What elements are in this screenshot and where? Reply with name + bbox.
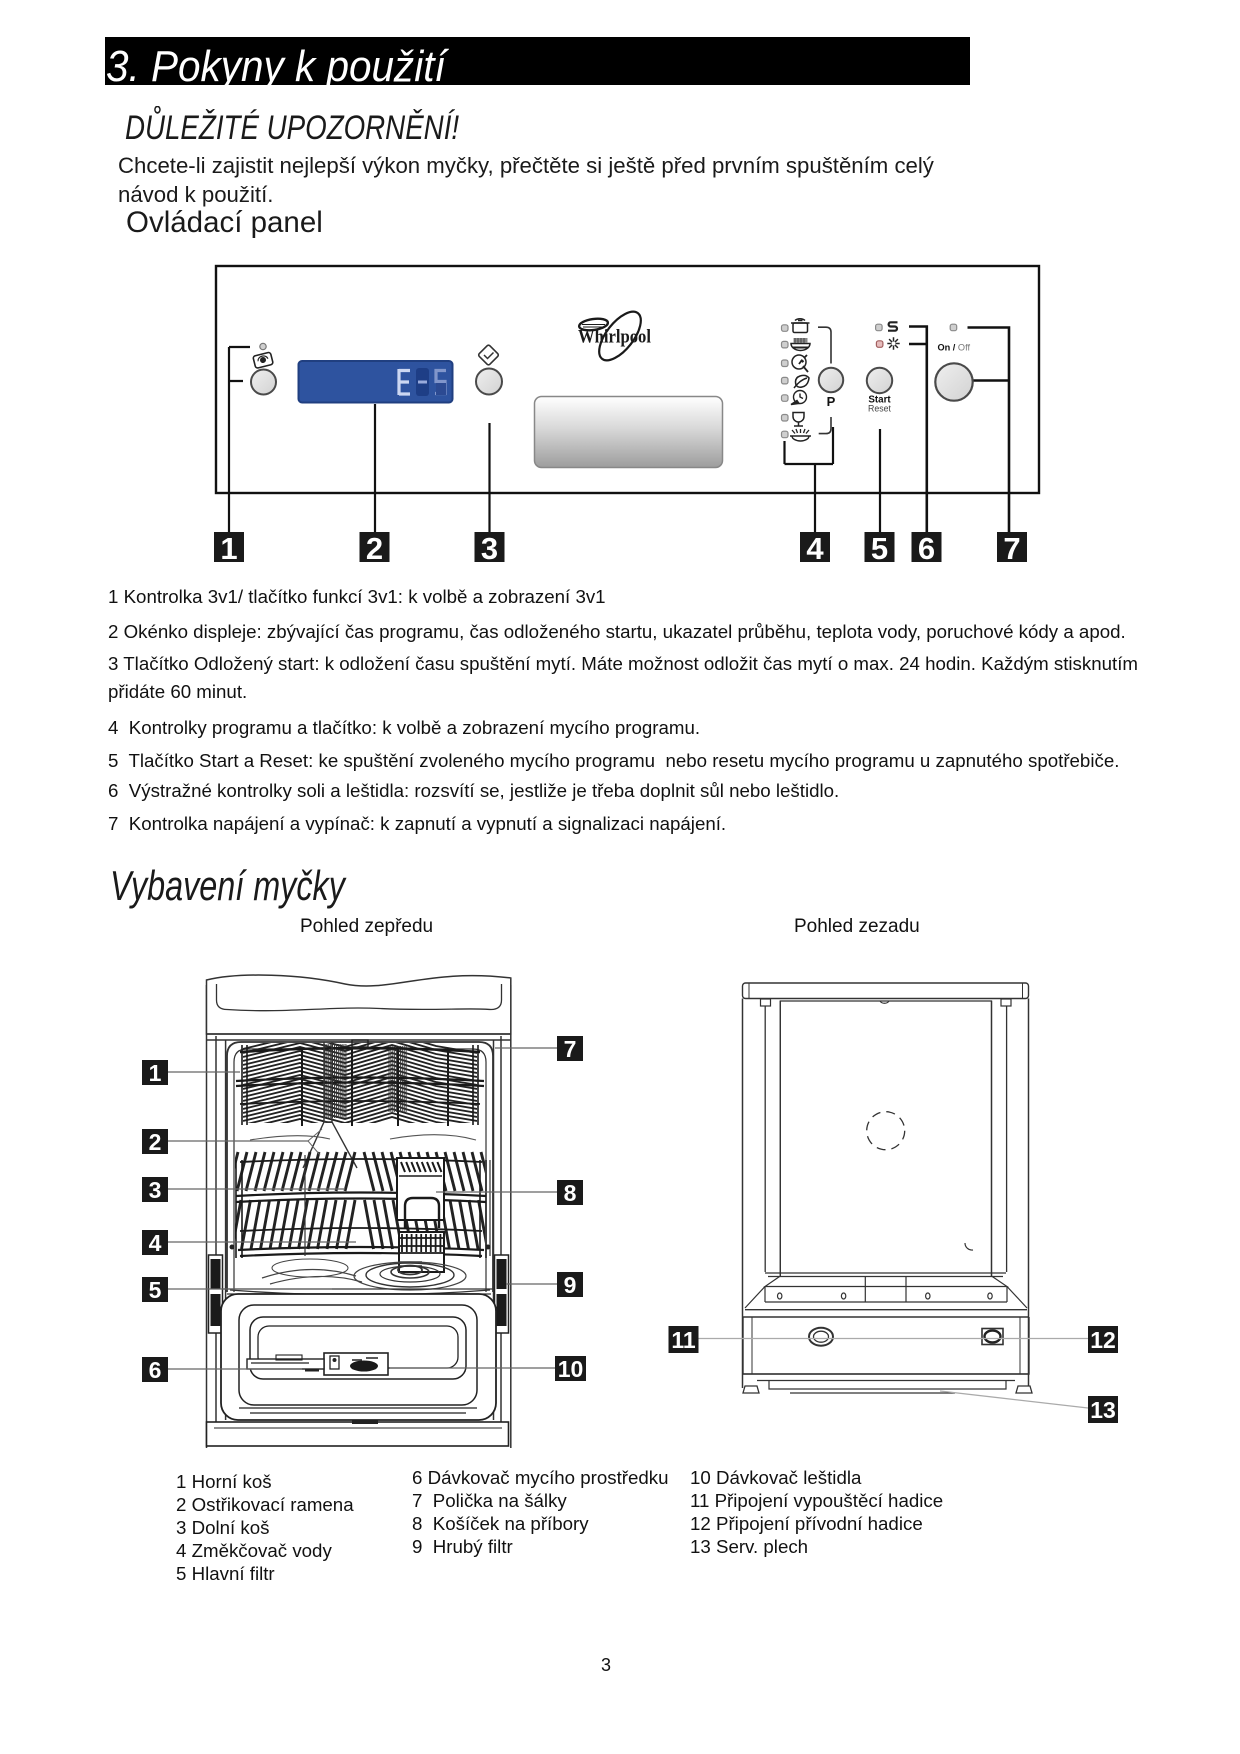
svg-text:6: 6 [149, 1357, 162, 1383]
svg-text:11: 11 [671, 1327, 696, 1353]
svg-text:1: 1 [220, 531, 237, 566]
svg-text:2: 2 [149, 1129, 162, 1155]
svg-text:2: 2 [366, 531, 383, 566]
svg-text:3: 3 [481, 531, 498, 566]
svg-text:1: 1 [149, 1060, 162, 1086]
svg-text:7: 7 [1003, 531, 1020, 566]
svg-text:4: 4 [806, 531, 824, 566]
svg-text:8: 8 [564, 1180, 577, 1206]
svg-text:10: 10 [558, 1356, 584, 1382]
svg-text:P: P [827, 394, 836, 409]
svg-text:6: 6 [918, 531, 935, 566]
svg-text:Whirlpool: Whirlpool [578, 327, 651, 348]
svg-text:7: 7 [564, 1036, 577, 1062]
svg-text:3: 3 [149, 1177, 162, 1203]
svg-text:12: 12 [1090, 1327, 1116, 1353]
svg-text:4: 4 [149, 1230, 162, 1256]
svg-text:9: 9 [564, 1272, 577, 1298]
svg-text:5: 5 [149, 1277, 162, 1303]
svg-text:13: 13 [1090, 1397, 1116, 1423]
svg-text:Reset: Reset [868, 404, 892, 414]
svg-text:5: 5 [871, 531, 888, 566]
svg-text:On / Off: On / Off [938, 343, 971, 353]
